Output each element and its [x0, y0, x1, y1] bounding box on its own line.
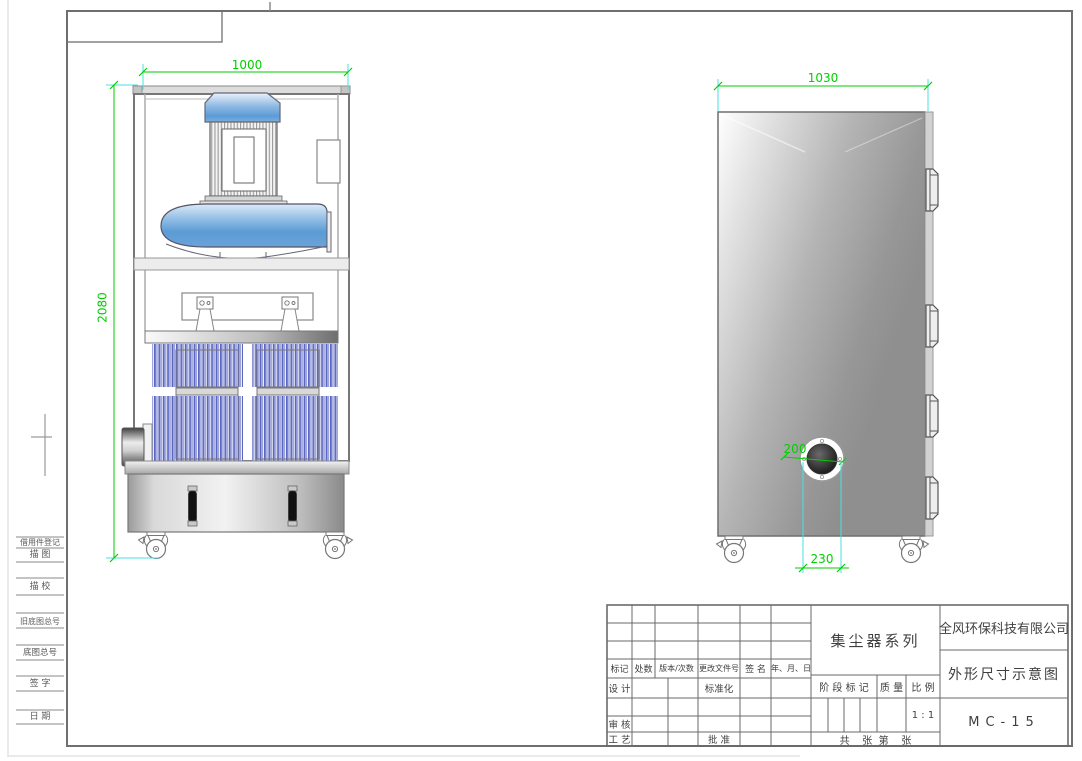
- tb-standardization-label: 标准化: [698, 678, 740, 698]
- tb-stage-label: 阶 段 标 记: [811, 675, 877, 698]
- tb-header-mark: 标记: [607, 659, 632, 678]
- tb-header-date: 年、月、日: [771, 659, 811, 678]
- blower-outlet: [327, 212, 331, 252]
- tb-header-version: 版本/次数: [655, 659, 698, 678]
- junction-box: [317, 140, 340, 183]
- page-edges: [8, 0, 800, 757]
- caster-icon: [323, 532, 352, 559]
- tb-doc-title: 外形尺寸示意图: [940, 650, 1068, 698]
- dust-drawer: [128, 474, 344, 532]
- dim-front-width-label: 1000: [223, 59, 271, 72]
- dim-port-offset-label: 230: [806, 553, 838, 566]
- tb-approve-label: 批 准: [698, 732, 740, 746]
- tb-design-label: 设 计: [607, 678, 632, 698]
- left-center-mark: [31, 414, 52, 476]
- tb-header-change-doc: 更改文件号: [698, 659, 740, 678]
- dim-front-height-label: 2080: [97, 286, 110, 330]
- hinge-icon: [926, 477, 938, 519]
- tb-header-signature: 签 名: [740, 659, 771, 678]
- dim-port-diameter-label: 200: [780, 443, 810, 456]
- tb-mass-label: 质 量: [877, 675, 906, 698]
- side-view-drawing: [717, 112, 939, 563]
- margin-label-date: 日 期: [16, 711, 64, 724]
- tb-company-name: 全风环保科技有限公司: [940, 605, 1068, 650]
- margin-label-trace-check: 描 校: [16, 580, 64, 594]
- tb-review-label: 审 核: [607, 716, 632, 732]
- margin-label-old-base-number: 旧底图总号: [16, 615, 64, 628]
- tb-scale-value: 1 : 1: [906, 698, 940, 732]
- front-view-drawing: [122, 86, 353, 559]
- drawing-page: 1000 2080 1030 200 230 借用件登记 描 图 描 校 旧底图…: [0, 0, 1082, 761]
- margin-label-base-number: 底图总号: [16, 647, 64, 660]
- caster-icon: [139, 532, 168, 559]
- margin-label-borrowed-parts: 借用件登记: [16, 537, 64, 548]
- tb-sheets-label: 共 张 第 张: [811, 732, 940, 746]
- drawer-handle: [288, 486, 297, 526]
- motor: [200, 93, 287, 206]
- caster-icon: [717, 536, 746, 563]
- drawer-handle: [188, 486, 197, 526]
- hinge-icon: [926, 169, 938, 211]
- tb-process-label: 工 艺: [607, 732, 632, 746]
- hinge-icon: [926, 305, 938, 347]
- tb-model-number: MC-15: [940, 698, 1068, 746]
- margin-label-signature: 签 字: [16, 678, 64, 691]
- dim-side-width-label: 1030: [799, 72, 847, 85]
- tb-series-title: 集尘器系列: [811, 605, 940, 675]
- margin-label-trace-drawing: 描 图: [16, 549, 64, 562]
- tb-header-count: 处数: [632, 659, 655, 678]
- hinge-icon: [926, 395, 938, 437]
- tb-scale-label: 比 例: [906, 675, 940, 698]
- margin-field-rules: [16, 537, 64, 724]
- caster-icon: [899, 536, 928, 563]
